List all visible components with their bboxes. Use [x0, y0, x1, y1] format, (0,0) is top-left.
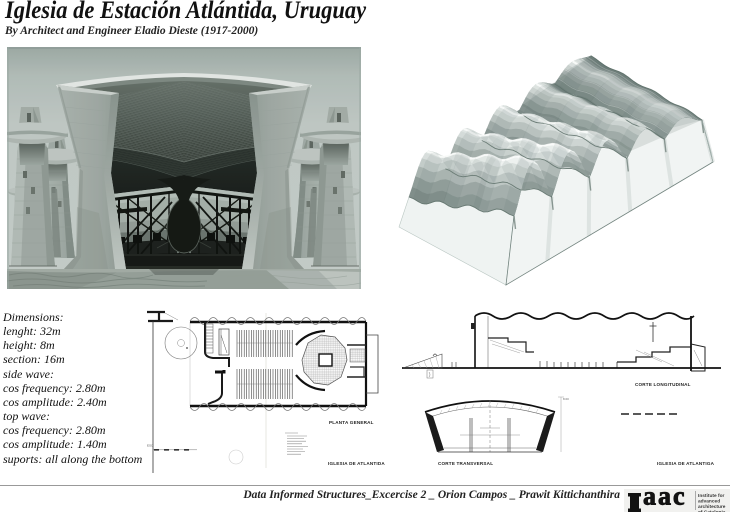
svg-text:architecture: architecture: [698, 504, 726, 510]
svg-text:aac: aac: [643, 486, 687, 511]
svg-text:Institute for: Institute for: [698, 493, 725, 499]
svg-text:CORTE LONGITUDINAL: CORTE LONGITUDINAL: [635, 382, 691, 387]
svg-text:PLANTA GENERAL: PLANTA GENERAL: [329, 420, 374, 425]
svg-text:advanced: advanced: [698, 499, 720, 505]
svg-text:8.00: 8.00: [563, 397, 569, 401]
svg-text:ESC: ESC: [147, 444, 154, 448]
svg-text:CORTE TRANSVERSAL: CORTE TRANSVERSAL: [438, 461, 493, 466]
svg-text:IGLESIA DE ATLANTIGA: IGLESIA DE ATLANTIGA: [657, 461, 715, 466]
svg-text:IGLESIA DE ATLANTIDA: IGLESIA DE ATLANTIDA: [328, 461, 385, 466]
